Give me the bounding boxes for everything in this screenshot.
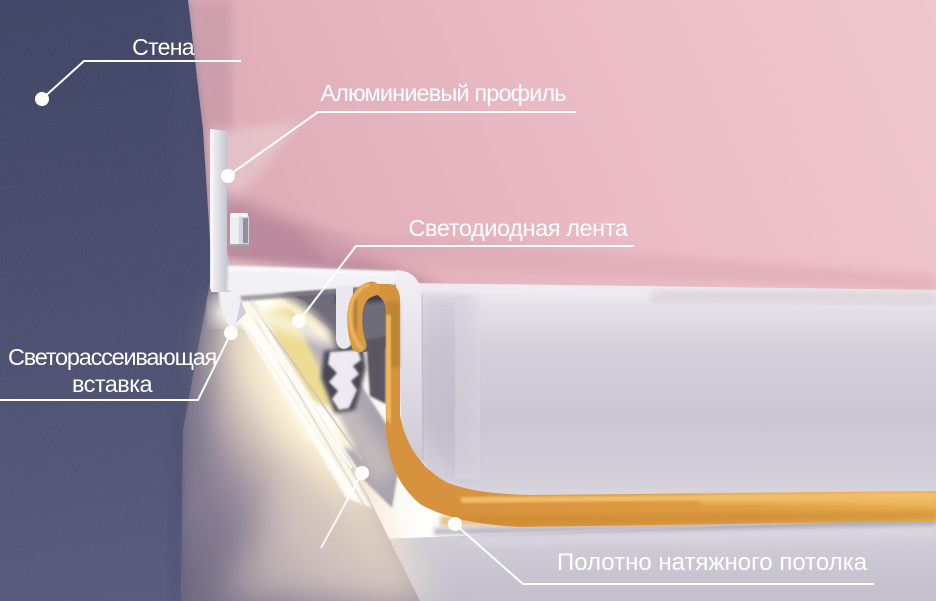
svg-text:Полотно натяжного потолка: Полотно натяжного потолка — [557, 549, 868, 576]
svg-text:Светорассеивающая: Светорассеивающая — [8, 344, 217, 370]
svg-text:Стена: Стена — [132, 34, 195, 60]
svg-text:Светодиодная лента: Светодиодная лента — [408, 215, 628, 241]
svg-text:Алюминиевый профиль: Алюминиевый профиль — [320, 80, 566, 106]
svg-text:вставка: вставка — [72, 371, 154, 397]
